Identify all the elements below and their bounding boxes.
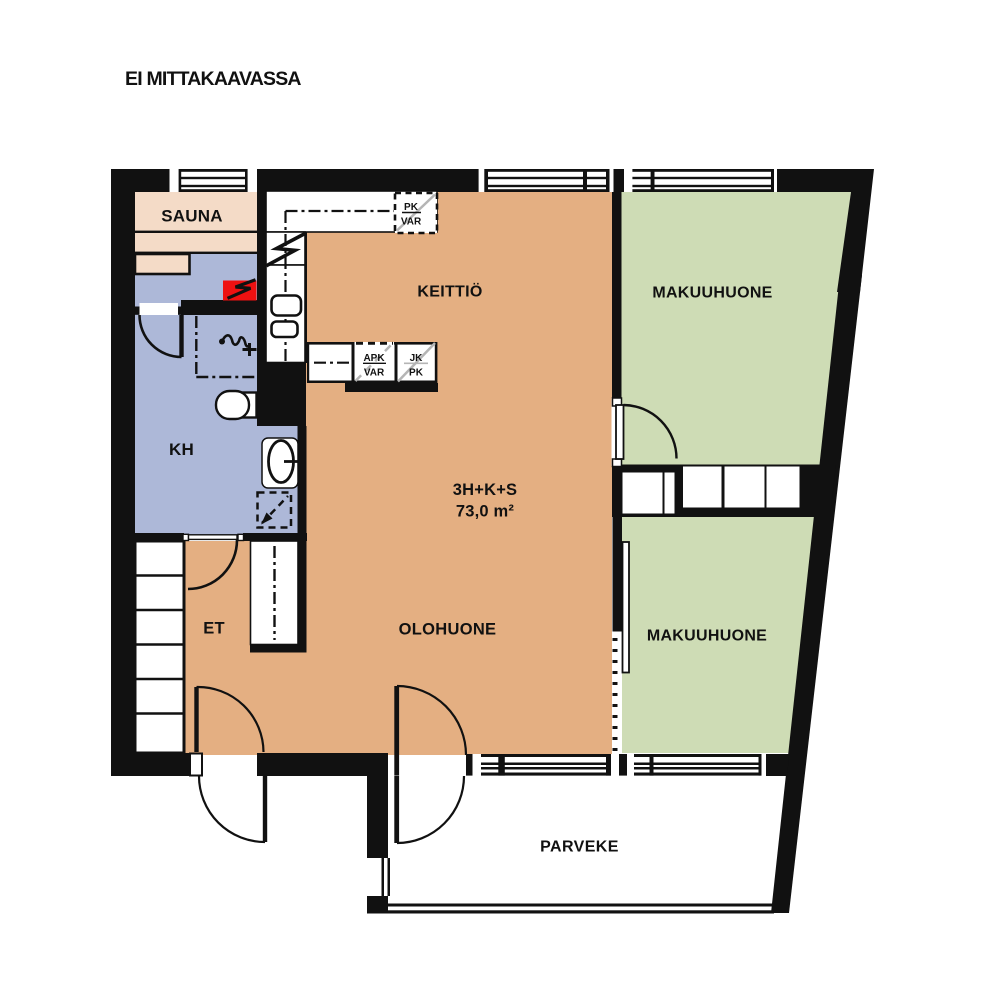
svg-text:VAR: VAR [401, 217, 422, 228]
svg-text:KH: KH [169, 440, 194, 459]
svg-text:APK: APK [363, 353, 385, 364]
svg-text:PK: PK [409, 368, 424, 379]
svg-text:OLOHUONE: OLOHUONE [399, 621, 497, 639]
svg-text:SAUNA: SAUNA [161, 207, 222, 226]
svg-text:MAKUUHUONE: MAKUUHUONE [647, 628, 767, 645]
svg-text:EI MITTAKAAVASSA: EI MITTAKAAVASSA [125, 68, 301, 90]
svg-text:JK: JK [410, 353, 424, 364]
svg-text:PARVEKE: PARVEKE [540, 839, 619, 856]
svg-text:KEITTIÖ: KEITTIÖ [417, 282, 482, 301]
svg-text:ET: ET [203, 620, 224, 638]
svg-text:VAR: VAR [364, 368, 385, 379]
svg-text:PK: PK [404, 202, 419, 213]
svg-text:3H+K+S: 3H+K+S [453, 481, 518, 499]
svg-text:MAKUUHUONE: MAKUUHUONE [652, 285, 772, 302]
svg-text:73,0 m²: 73,0 m² [456, 503, 515, 521]
